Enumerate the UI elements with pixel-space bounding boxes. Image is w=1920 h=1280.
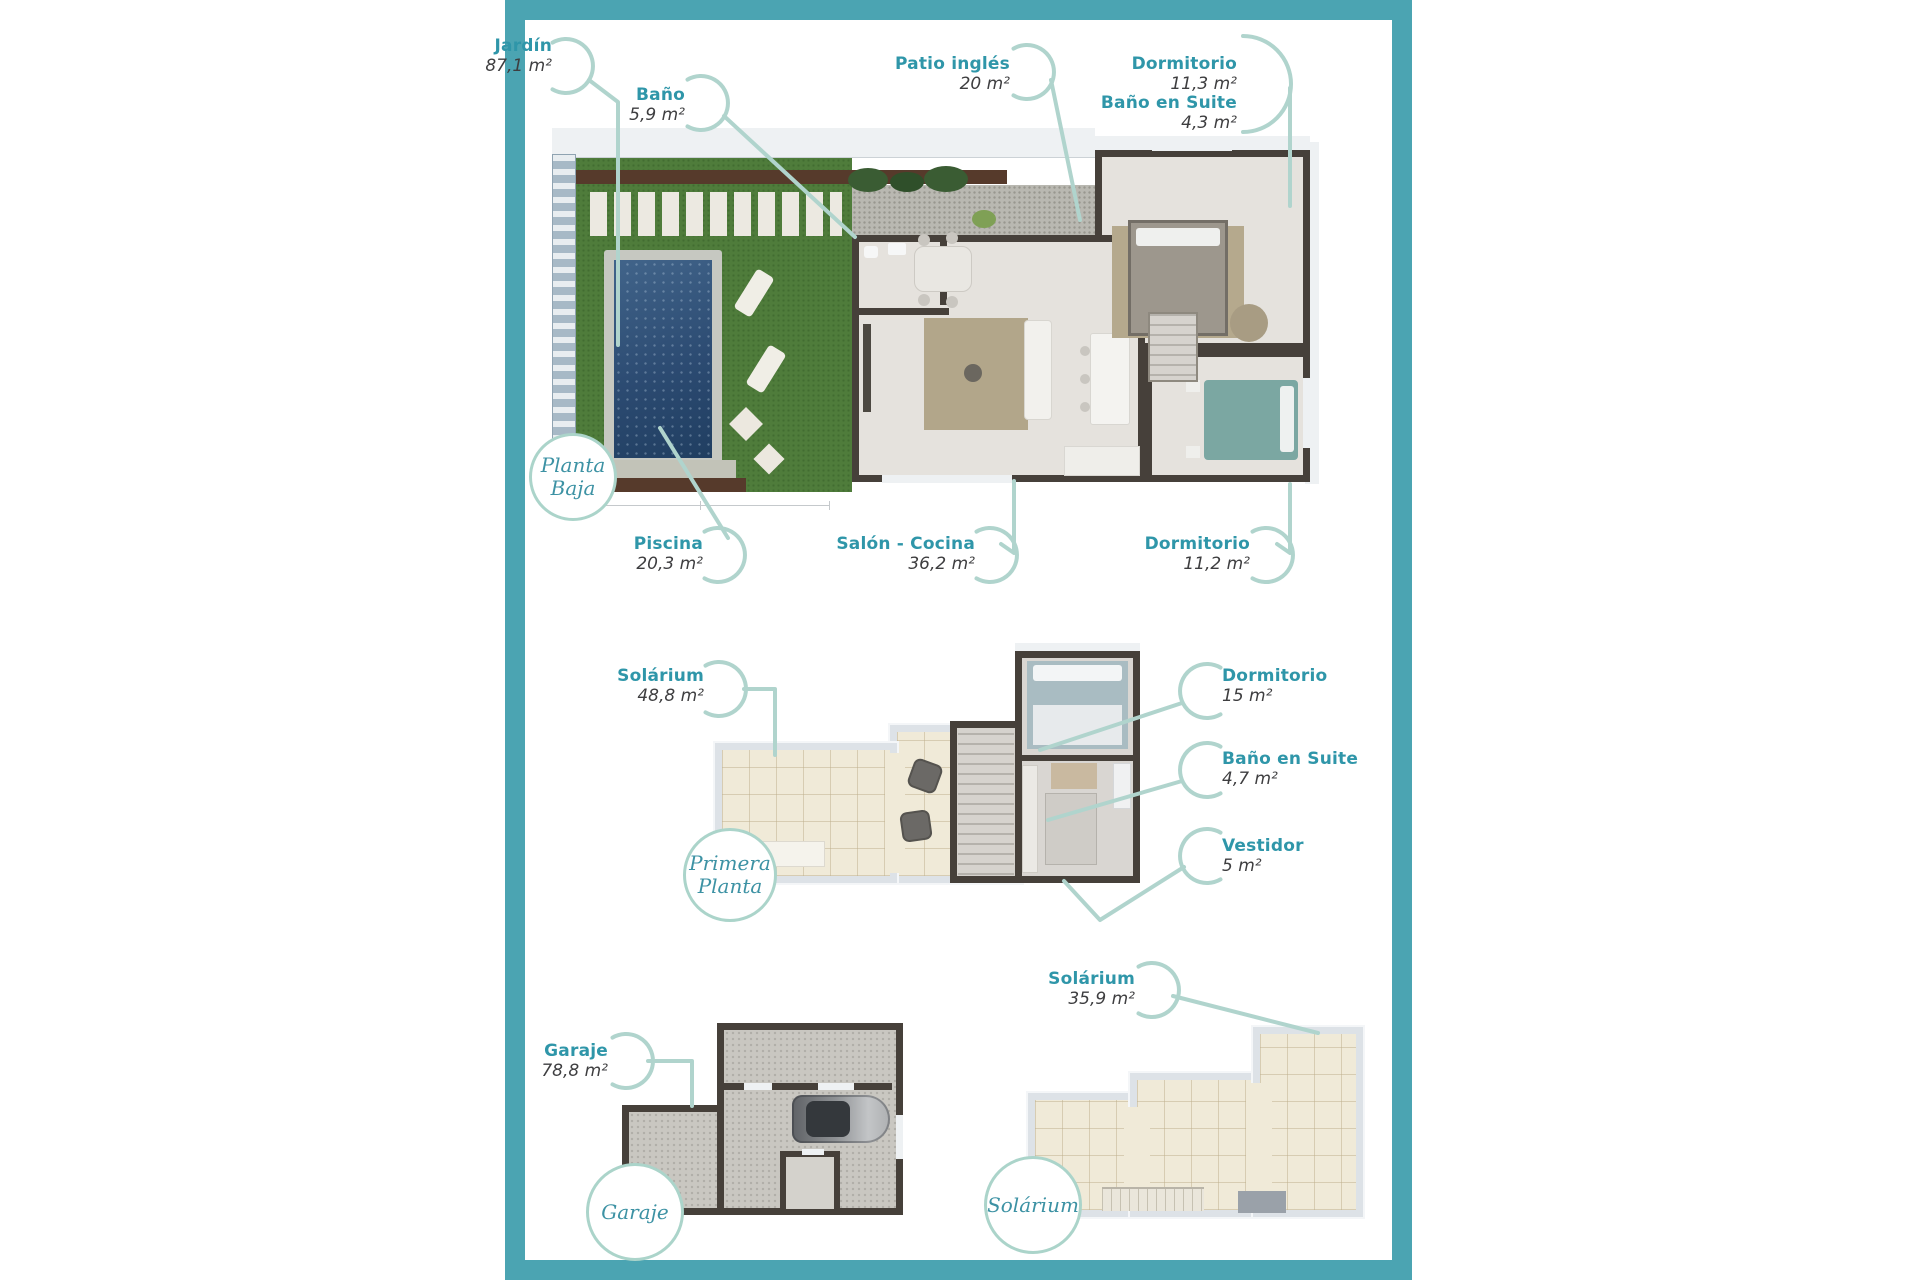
roof-edge xyxy=(552,128,1095,158)
kitchen-counter xyxy=(1064,446,1140,476)
room-label-dormitorio-3: Dormitorio 15 m² xyxy=(1222,666,1372,706)
room-label-salon-cocina: Salón - Cocina 36,2 m² xyxy=(825,534,975,574)
floor-plan-flyer: Jardín 87,1 m² Baño 5,9 m² Patio inglés … xyxy=(0,0,1920,1280)
room-name: Dormitorio xyxy=(1110,534,1250,554)
garage-door xyxy=(896,1115,903,1159)
cypress-plant xyxy=(890,172,924,192)
room-area: 87,1 m² xyxy=(412,56,552,76)
floor-badge-primera-planta: Primera Planta xyxy=(683,828,777,922)
room-name: Patio inglés xyxy=(870,54,1010,74)
planta-baja-plan xyxy=(552,128,1322,492)
room-area: 11,3 m² xyxy=(1097,74,1237,94)
room-label-solarium-top: Solárium 35,9 m² xyxy=(995,969,1135,1009)
room-name: Solárium xyxy=(564,666,704,686)
room-label-bano-en-suite-2: Baño en Suite 4,7 m² xyxy=(1222,749,1382,789)
dimension-tick xyxy=(829,501,830,510)
badge-line: Planta xyxy=(698,875,763,898)
agave-plant xyxy=(972,210,996,228)
car-roof xyxy=(806,1101,850,1137)
door-opening xyxy=(744,1083,772,1090)
kitchen-island xyxy=(1090,333,1130,425)
dining-table xyxy=(914,246,972,292)
door-opening xyxy=(802,1149,824,1155)
room-area: 20 m² xyxy=(870,74,1010,94)
room-area: 35,9 m² xyxy=(995,989,1135,1009)
area-rug xyxy=(1051,763,1097,789)
dining-chair xyxy=(918,234,930,246)
terrace-floor xyxy=(1246,1083,1272,1207)
pillows xyxy=(1136,228,1220,246)
room-name: Piscina xyxy=(563,534,703,554)
room-label-dormitorio-1: Dormitorio 11,3 m² xyxy=(1097,54,1237,94)
room-area: 48,8 m² xyxy=(564,686,704,706)
dining-chair xyxy=(918,294,930,306)
cypress-plant xyxy=(924,166,968,192)
room-name: Dormitorio xyxy=(1222,666,1372,686)
washbasin xyxy=(888,243,906,255)
window xyxy=(1303,378,1311,448)
toilet xyxy=(864,246,878,258)
dining-chair xyxy=(946,232,958,244)
room-label-patio-ingles: Patio inglés 20 m² xyxy=(870,54,1010,94)
room-name: Jardín xyxy=(412,36,552,56)
staircase xyxy=(958,733,1014,875)
dining-chair xyxy=(946,296,958,308)
room-area: 11,2 m² xyxy=(1110,554,1250,574)
dimension-tick xyxy=(700,501,701,510)
badge-line: Planta xyxy=(541,454,606,477)
cypress-plant xyxy=(848,168,888,192)
room-area: 78,8 m² xyxy=(468,1061,608,1081)
room-label-piscina: Piscina 20,3 m² xyxy=(563,534,703,574)
pillows xyxy=(1280,386,1294,452)
room-area: 5,9 m² xyxy=(545,105,685,125)
badge-line: Primera xyxy=(689,852,771,875)
badge-line: Solárium xyxy=(987,1194,1079,1217)
room-name: Salón - Cocina xyxy=(825,534,975,554)
room-area: 4,7 m² xyxy=(1222,769,1382,789)
sofa xyxy=(1024,320,1052,420)
dresser xyxy=(1045,793,1097,865)
room-name: Vestidor xyxy=(1222,836,1362,856)
room-label-vestidor: Vestidor 5 m² xyxy=(1222,836,1362,876)
room-area: 20,3 m² xyxy=(563,554,703,574)
room-label-bano-en-suite: Baño en Suite 4,3 m² xyxy=(1097,93,1237,133)
window xyxy=(1152,143,1232,151)
stair-landing xyxy=(1238,1191,1286,1213)
patio-ingles-gravel xyxy=(852,185,1095,235)
room-name: Garaje xyxy=(468,1041,608,1061)
room-label-solarium-p1: Solárium 48,8 m² xyxy=(564,666,704,706)
window xyxy=(882,475,1012,483)
coffee-table xyxy=(964,364,982,382)
vanity xyxy=(1113,763,1131,809)
armchair xyxy=(899,809,933,843)
round-rug xyxy=(1230,304,1268,342)
interior-wall xyxy=(1022,755,1133,761)
room-label-bano: Baño 5,9 m² xyxy=(545,85,685,125)
floor-badge-planta-baja: Planta Baja xyxy=(529,433,617,521)
room-name: Baño en Suite xyxy=(1222,749,1382,769)
staircase xyxy=(1102,1187,1204,1211)
floor-badge-garaje: Garaje xyxy=(586,1163,684,1261)
bar-stool xyxy=(1080,374,1090,384)
room-name: Baño xyxy=(545,85,685,105)
room-label-garaje: Garaje 78,8 m² xyxy=(468,1041,608,1081)
room-name: Baño en Suite xyxy=(1097,93,1237,113)
wardrobe xyxy=(1022,765,1038,873)
primera-planta-plan xyxy=(715,643,1140,883)
door-opening xyxy=(818,1083,854,1090)
room-label-jardin: Jardín 87,1 m² xyxy=(412,36,552,76)
nightstand xyxy=(1186,446,1200,458)
bar-stool xyxy=(1080,346,1090,356)
room-area: 36,2 m² xyxy=(825,554,975,574)
badge-line: Baja xyxy=(551,477,596,500)
room-label-dormitorio-2: Dormitorio 11,2 m² xyxy=(1110,534,1250,574)
tv-unit xyxy=(863,324,871,412)
bed-sheet xyxy=(1033,705,1122,745)
swimming-pool xyxy=(614,260,712,458)
room-area: 5 m² xyxy=(1222,856,1362,876)
storage-room xyxy=(780,1151,840,1215)
badge-line: Garaje xyxy=(601,1201,668,1224)
pillows xyxy=(1033,665,1122,681)
bar-stool xyxy=(1080,402,1090,412)
interior-wall xyxy=(859,308,949,315)
stepping-stones xyxy=(590,192,842,236)
room-area: 4,3 m² xyxy=(1097,113,1237,133)
room-area: 15 m² xyxy=(1222,686,1372,706)
floor-badge-solarium: Solárium xyxy=(984,1156,1082,1254)
room-name: Solárium xyxy=(995,969,1135,989)
room-name: Dormitorio xyxy=(1097,54,1237,74)
staircase xyxy=(1148,312,1198,382)
car xyxy=(792,1095,890,1143)
